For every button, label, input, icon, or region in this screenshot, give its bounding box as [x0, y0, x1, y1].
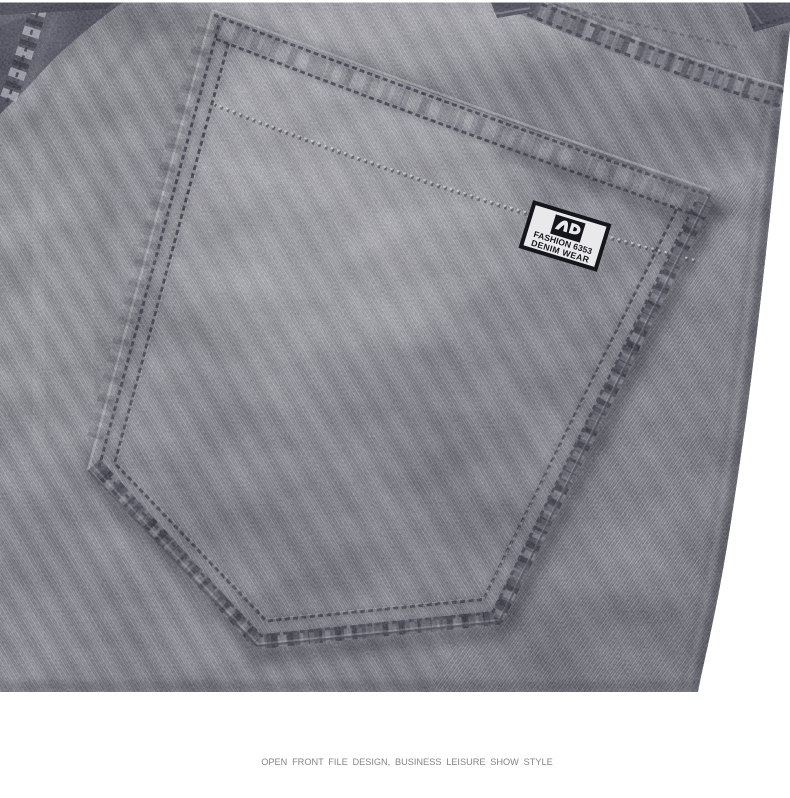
svg-text:OPEN FRONT FILE DESIGN, BUSINE: OPEN FRONT FILE DESIGN, BUSINESS LEISURE… — [261, 757, 552, 767]
